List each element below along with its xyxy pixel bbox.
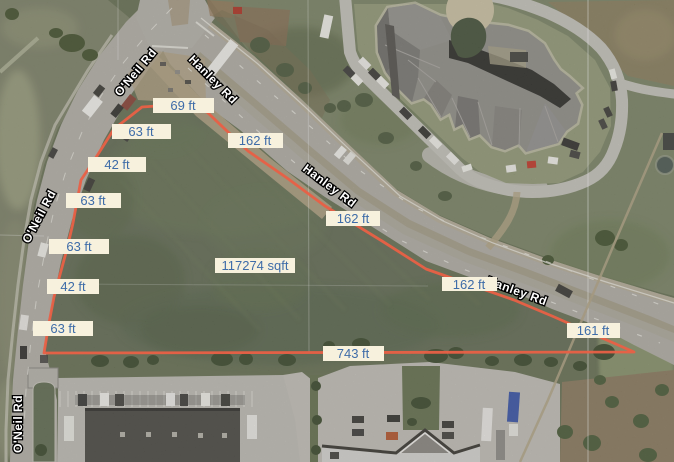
svg-text:63 ft: 63 ft [66, 239, 92, 254]
svg-text:69 ft: 69 ft [170, 98, 196, 113]
svg-text:42 ft: 42 ft [60, 279, 86, 294]
svg-text:63 ft: 63 ft [50, 321, 76, 336]
svg-text:63 ft: 63 ft [80, 193, 106, 208]
svg-text:117274 sqft: 117274 sqft [222, 258, 289, 273]
svg-text:63 ft: 63 ft [128, 124, 154, 139]
svg-text:162 ft: 162 ft [337, 211, 370, 226]
svg-text:162 ft: 162 ft [239, 133, 272, 148]
svg-text:161 ft: 161 ft [577, 323, 610, 338]
svg-text:42 ft: 42 ft [104, 157, 130, 172]
svg-text:743 ft: 743 ft [337, 346, 370, 361]
svg-text:O'Neil Rd: O'Neil Rd [11, 395, 25, 453]
svg-text:162 ft: 162 ft [453, 277, 486, 292]
